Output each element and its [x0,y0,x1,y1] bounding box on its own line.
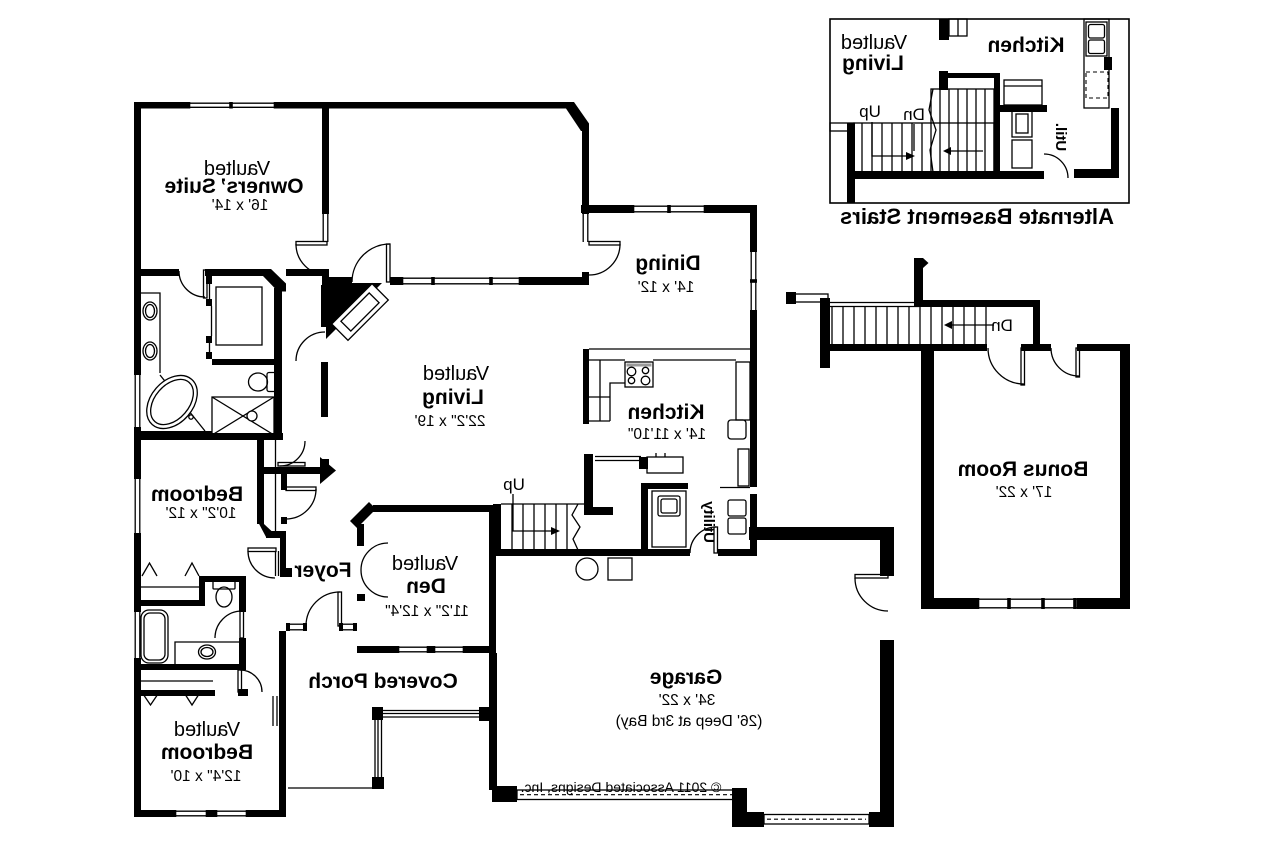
svg-text:Dn: Dn [903,105,925,124]
svg-text:Living: Living [422,386,484,409]
svg-text:Garage: Garage [650,666,722,689]
svg-text:16' x 14': 16' x 14' [212,197,269,214]
svg-text:Den: Den [406,575,446,598]
svg-text:Covered Porch: Covered Porch [308,670,457,693]
svg-text:34' x 22': 34' x 22' [659,692,716,709]
svg-text:© 2011 Associated Designs, Inc: © 2011 Associated Designs, Inc. [521,779,722,795]
svg-text:Kitchen: Kitchen [987,34,1064,57]
svg-text:14' x 12': 14' x 12' [638,279,695,296]
svg-text:Vaulted: Vaulted [841,32,907,54]
svg-text:Bedroom: Bedroom [151,483,243,506]
svg-text:17' x 22': 17' x 22' [996,484,1053,501]
svg-text:Vaulted: Vaulted [174,719,240,741]
svg-text:10'2" x 12': 10'2" x 12' [166,505,237,522]
svg-text:Bonus Room: Bonus Room [958,458,1089,481]
svg-text:Alternate Basement Stairs: Alternate Basement Stairs [840,204,1114,229]
svg-text:Vaulted: Vaulted [423,363,489,385]
svg-text:Living: Living [842,52,904,75]
svg-text:12'4" x 10': 12'4" x 10' [171,768,242,785]
svg-text:Foyer: Foyer [294,559,351,582]
svg-text:Vaulted: Vaulted [392,553,458,575]
svg-text:Owners’ Suite: Owners’ Suite [165,175,304,198]
svg-text:Up: Up [503,475,525,494]
svg-text:11'2" x 12'4": 11'2" x 12'4" [385,603,469,620]
svg-text:Kitchen: Kitchen [627,401,704,424]
svg-text:Bedroom: Bedroom [161,741,253,764]
svg-text:22'2" x 19': 22'2" x 19' [415,413,486,430]
svg-text:Dining: Dining [635,252,700,275]
svg-text:Dn: Dn [991,316,1013,335]
svg-text:(26' Deep at 3rd Bay): (26' Deep at 3rd Bay) [616,713,763,730]
svg-text:Util.: Util. [1052,123,1069,151]
svg-text:14' x 11'10": 14' x 11'10" [628,426,706,443]
svg-text:Up: Up [859,102,881,121]
